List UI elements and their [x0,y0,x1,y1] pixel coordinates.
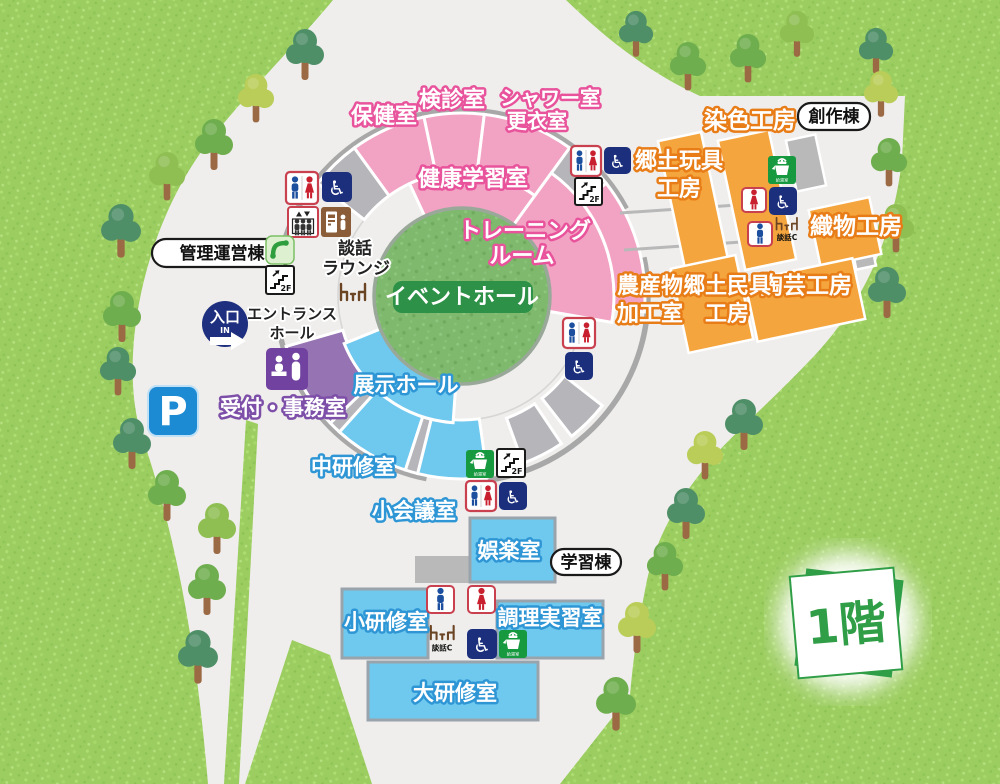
building-pill-craft: 創作棟 [798,103,870,130]
label-nosan-2: 加工室 [616,301,683,327]
wheelchair-icon: ♿ [467,629,497,659]
label-orimono: 織物工房 [810,213,902,240]
label-reception: 受付・事務室 [220,396,346,420]
label-nosan-1: 農産物 [617,273,683,299]
svg-text:♿: ♿ [571,358,587,379]
wheelchair-icon: ♿ [499,482,527,510]
svg-text:♿: ♿ [328,176,346,200]
label-danwa-2: ラウンジ [322,259,390,279]
label-mingu-1: 郷土民具 [683,274,771,299]
lounge-corner-label: 談話C [432,643,453,653]
hot-water-label: 給湯室 [507,651,520,658]
label-kenko-gakushu: 健康学習室 [418,166,528,192]
wheelchair-icon: ♿ [322,172,352,202]
parking-icon: P [148,386,198,436]
label-craft-building: 創作棟 [808,106,861,127]
floor-badge: 1階 [778,552,918,692]
label-chori: 調理実習室 [498,606,603,630]
label-training-1: トレーニング [459,218,591,244]
facility-map: イベントホール 保健室 検診室 シャワー室 更衣室 健康学習室 トレーニング ル… [0,0,1000,784]
mens-toilet-icon [427,586,454,613]
label-gangu-1: 郷土玩具 [635,149,723,174]
toilet-icon [563,318,595,348]
toilet-icon [571,146,601,176]
floor-badge-label: 1階 [804,595,888,657]
label-entrance-in: IN [220,326,230,335]
stairs-2f-icon: 2F [575,178,602,205]
stairs-floor-label: 2F [511,467,522,476]
label-parking: P [158,389,187,435]
map-canvas: イベントホール 保健室 検診室 シャワー室 更衣室 健康学習室 トレーニング ル… [0,0,1000,784]
label-chu-kenshu: 中研修室 [311,455,395,479]
vending-machine-icon [321,207,351,237]
hot-water-icon: 給湯室 [499,630,527,658]
room-kenshin [424,113,484,175]
label-sho-kenshu: 小研修室 [344,610,428,634]
svg-text:♿: ♿ [609,152,625,173]
womens-toilet-icon [468,586,495,613]
building-pill-learning: 学習棟 [551,549,621,575]
label-hokenshitsu: 保健室 [350,103,417,129]
svg-text:♿: ♿ [505,488,521,509]
label-kenshin: 検診室 [419,87,485,113]
learning-gray-slab [415,556,470,583]
toilet-icon [286,172,318,204]
hot-water-label: 給湯室 [474,471,487,478]
label-dai-kenshu: 大研修室 [413,681,497,705]
label-togei: 陶芸工房 [760,272,852,299]
stairs-floor-label: 2F [280,284,291,293]
label-danwa-1: 談話 [338,238,372,259]
svg-text:♿: ♿ [775,193,791,214]
label-management-building: 管理運営棟 [180,243,266,264]
label-goraku: 娯楽室 [478,539,541,563]
lounge-corner-label: 談話C [777,232,798,242]
mens-toilet-icon [748,222,772,246]
label-event-hall: イベントホール [385,285,539,310]
label-sho-kaigi: 小会議室 [372,499,456,523]
label-learning-building: 学習棟 [561,552,613,573]
label-mingu-2: 工房 [705,301,749,327]
wheelchair-icon: ♿ [565,352,593,380]
stairs-2f-icon: 2F [266,266,294,294]
label-koishitsu: 更衣室 [507,109,567,133]
label-senshoku: 染色工房 [704,107,796,134]
wheelchair-icon: ♿ [769,187,797,215]
stairs-2f-icon: 2F [497,449,525,477]
hot-water-icon: 給湯室 [466,450,494,478]
reception-icon [266,348,308,390]
toilet-icon [466,481,496,511]
womens-toilet-icon [742,188,766,212]
svg-text:♿: ♿ [473,633,491,657]
label-entrance-hall-2: ホール [269,324,314,342]
elevator-icon [288,207,318,237]
label-training-2: ルーム [489,244,554,269]
hot-water-label: 給湯室 [776,177,789,184]
phone-icon [266,236,294,264]
label-entrance-hall-1: エントランス [247,305,337,323]
label-shower: シャワー室 [500,86,600,110]
label-entrance: 入口 [210,308,240,326]
label-exhibition: 展示ホール [354,373,459,397]
stairs-floor-label: 2F [589,195,599,204]
label-gangu-2: 工房 [657,176,701,202]
hot-water-icon: 給湯室 [768,156,796,184]
wheelchair-icon: ♿ [604,147,631,174]
